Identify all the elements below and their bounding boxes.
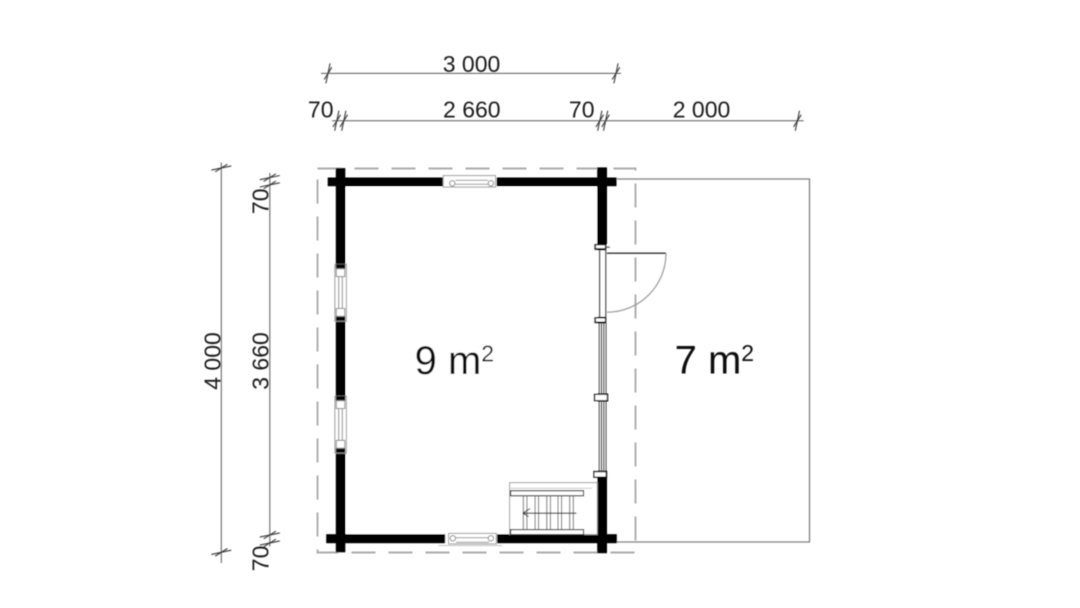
svg-text:2 660: 2 660 [443,97,501,123]
svg-text:2 000: 2 000 [673,97,731,123]
svg-text:70: 70 [247,546,273,572]
svg-text:70: 70 [308,97,334,123]
svg-text:7 m: 7 m [675,339,742,383]
svg-text:9 m: 9 m [415,339,482,383]
svg-text:4 000: 4 000 [199,332,225,390]
svg-text:2: 2 [481,341,494,367]
svg-text:3 000: 3 000 [443,51,501,77]
svg-text:70: 70 [569,97,595,123]
svg-text:3 660: 3 660 [247,332,273,390]
svg-text:70: 70 [247,189,273,215]
svg-text:2: 2 [741,340,754,366]
